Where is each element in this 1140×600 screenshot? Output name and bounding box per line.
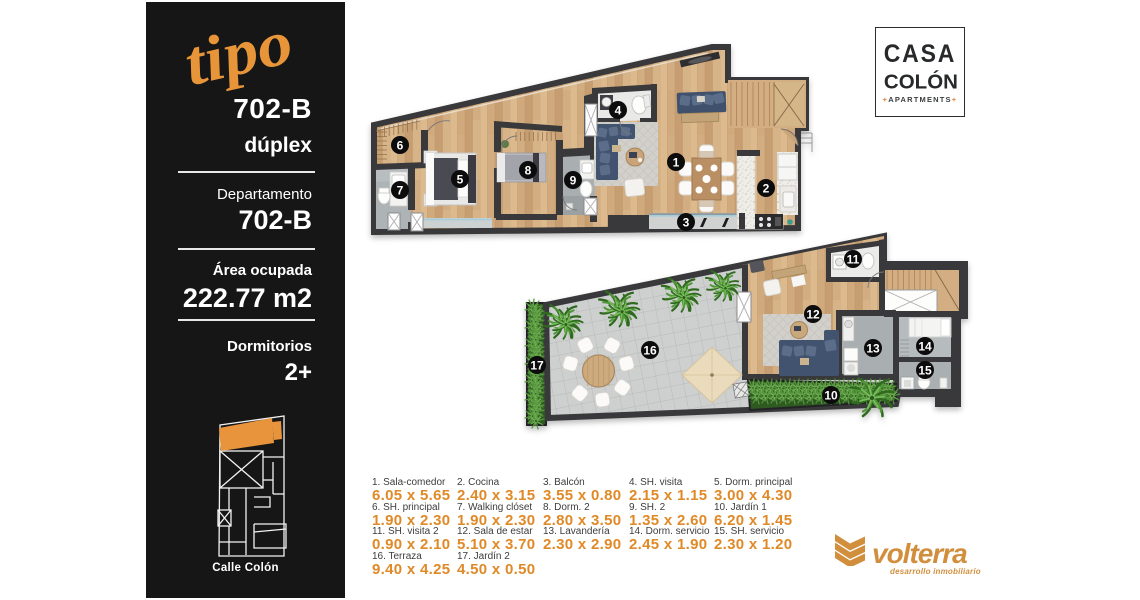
svg-text:5: 5 xyxy=(457,172,464,186)
svg-text:15: 15 xyxy=(918,363,932,377)
svg-text:1: 1 xyxy=(673,155,680,169)
svg-text:6: 6 xyxy=(397,138,404,152)
svg-text:10: 10 xyxy=(824,388,838,402)
svg-text:17: 17 xyxy=(530,358,544,372)
svg-text:14: 14 xyxy=(918,339,932,353)
svg-text:8: 8 xyxy=(525,163,532,177)
svg-text:9: 9 xyxy=(570,173,577,187)
svg-text:3: 3 xyxy=(683,215,690,229)
svg-text:12: 12 xyxy=(806,307,820,321)
svg-text:4: 4 xyxy=(615,103,622,117)
svg-text:16: 16 xyxy=(643,343,657,357)
svg-text:13: 13 xyxy=(866,341,880,355)
svg-text:2: 2 xyxy=(763,181,770,195)
svg-text:11: 11 xyxy=(847,252,860,266)
svg-text:7: 7 xyxy=(397,183,404,197)
